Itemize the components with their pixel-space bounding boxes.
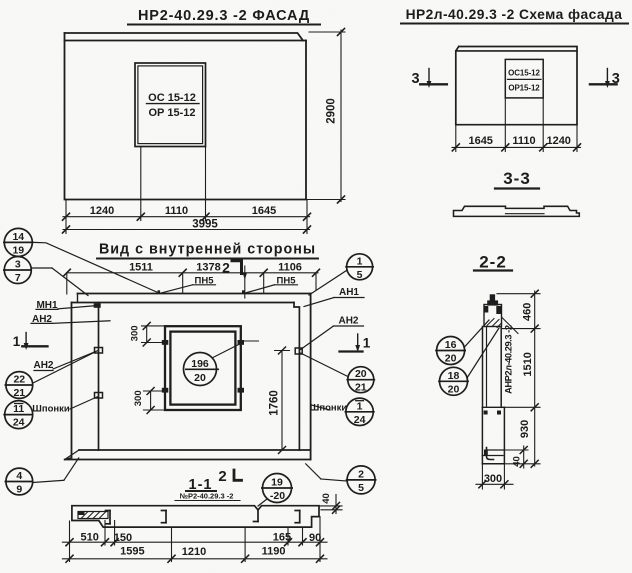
svg-text:196: 196 — [191, 358, 209, 370]
svg-text:1240: 1240 — [546, 135, 570, 147]
svg-text:20: 20 — [355, 368, 367, 380]
svg-text:460: 460 — [522, 303, 534, 321]
svg-text:22: 22 — [13, 374, 25, 386]
svg-text:1: 1 — [13, 334, 21, 349]
svg-text:3: 3 — [412, 71, 420, 87]
svg-text:7: 7 — [15, 272, 21, 284]
svg-text:14: 14 — [12, 231, 24, 243]
svg-text:9: 9 — [16, 484, 22, 496]
svg-text:1645: 1645 — [468, 135, 492, 147]
svg-text:510: 510 — [81, 532, 99, 544]
svg-text:1: 1 — [357, 255, 363, 267]
svg-text:3: 3 — [15, 259, 21, 271]
svg-text:2: 2 — [222, 259, 230, 275]
svg-text:ОР 15-12: ОР 15-12 — [148, 107, 195, 119]
svg-text:1: 1 — [363, 336, 371, 351]
svg-text:20: 20 — [445, 353, 457, 365]
svg-text:300: 300 — [130, 325, 141, 341]
svg-text:11: 11 — [13, 403, 24, 415]
svg-text:АНР2л-40.29.3 -2: АНР2л-40.29.3 -2 — [504, 325, 514, 394]
svg-text:1110: 1110 — [512, 135, 535, 147]
svg-text:19: 19 — [271, 477, 283, 489]
svg-text:1240: 1240 — [90, 205, 114, 217]
svg-text:ОС 15-12: ОС 15-12 — [148, 92, 196, 104]
svg-text:2-2: 2-2 — [479, 253, 507, 272]
svg-text:24: 24 — [13, 417, 25, 429]
svg-text:ОР15-12: ОР15-12 — [508, 84, 540, 93]
svg-text:НР2л-40.29.3 -2 Схема фасада: НР2л-40.29.3 -2 Схема фасада — [406, 7, 623, 22]
svg-text:1645: 1645 — [252, 205, 276, 217]
svg-text:АН1: АН1 — [339, 287, 359, 298]
svg-text:1190: 1190 — [262, 546, 286, 558]
svg-text:1110: 1110 — [165, 205, 188, 217]
svg-text:300: 300 — [484, 473, 502, 485]
svg-text:20: 20 — [194, 372, 206, 384]
svg-text:5: 5 — [358, 482, 364, 494]
svg-text:2: 2 — [218, 468, 226, 485]
svg-text:165: 165 — [273, 532, 291, 544]
svg-text:3-3: 3-3 — [503, 169, 531, 188]
svg-text:2: 2 — [358, 468, 364, 480]
svg-text:Шпонки: Шпонки — [32, 404, 70, 415]
svg-text:40: 40 — [512, 456, 523, 467]
svg-text:1510: 1510 — [522, 352, 534, 376]
svg-text:№Р2-40.29.3 -2: №Р2-40.29.3 -2 — [180, 492, 234, 501]
svg-text:1: 1 — [357, 400, 363, 412]
svg-text:ПН5: ПН5 — [195, 276, 215, 287]
svg-text:МН1: МН1 — [36, 300, 58, 311]
svg-text:20: 20 — [448, 383, 460, 395]
svg-text:21: 21 — [355, 382, 367, 394]
svg-text:НР2-40.29.3 -2 ФАСАД: НР2-40.29.3 -2 ФАСАД — [138, 8, 310, 24]
svg-text:1106: 1106 — [278, 261, 302, 273]
svg-text:150: 150 — [114, 532, 132, 544]
svg-text:АН2: АН2 — [338, 316, 358, 327]
svg-text:1378: 1378 — [196, 261, 220, 273]
svg-text:300: 300 — [133, 390, 144, 406]
svg-text:18: 18 — [448, 370, 460, 382]
svg-text:1511: 1511 — [129, 261, 153, 273]
svg-text:-20: -20 — [270, 490, 285, 502]
svg-text:ОС15-12: ОС15-12 — [508, 69, 540, 78]
svg-text:Шпонки: Шпонки — [310, 403, 348, 414]
svg-text:АН2: АН2 — [32, 314, 52, 325]
svg-text:930: 930 — [519, 420, 531, 438]
svg-text:24: 24 — [354, 414, 366, 426]
svg-text:Вид с внутренней стороны: Вид с внутренней стороны — [99, 242, 316, 258]
svg-text:1760: 1760 — [269, 390, 281, 416]
svg-text:АН2: АН2 — [33, 360, 53, 371]
svg-text:90: 90 — [309, 532, 321, 544]
svg-text:3995: 3995 — [192, 218, 218, 230]
svg-text:4: 4 — [16, 470, 22, 482]
svg-text:3: 3 — [612, 71, 620, 87]
svg-text:2900: 2900 — [326, 98, 338, 124]
svg-text:16: 16 — [445, 339, 457, 351]
svg-text:1210: 1210 — [182, 546, 206, 558]
svg-text:5: 5 — [357, 269, 363, 281]
svg-text:40: 40 — [321, 493, 332, 504]
svg-text:19: 19 — [12, 244, 24, 256]
svg-text:ПН5: ПН5 — [277, 276, 297, 287]
svg-text:21: 21 — [13, 387, 25, 399]
svg-text:1595: 1595 — [120, 546, 144, 558]
